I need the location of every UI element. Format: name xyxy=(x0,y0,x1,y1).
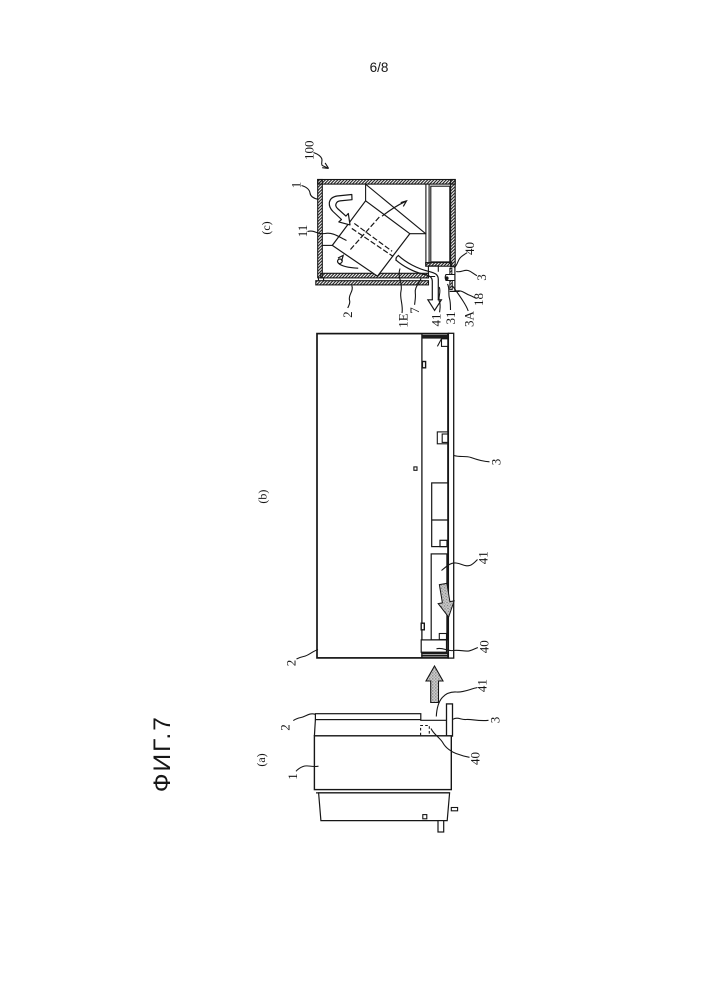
svg-text:31: 31 xyxy=(443,312,458,325)
svg-text:41: 41 xyxy=(429,314,444,327)
svg-text:41: 41 xyxy=(475,679,490,692)
svg-text:40: 40 xyxy=(476,640,491,653)
svg-text:40: 40 xyxy=(468,752,483,765)
svg-text:ФИГ.7: ФИГ.7 xyxy=(149,715,176,792)
svg-text:2: 2 xyxy=(340,311,355,318)
svg-text:(b): (b) xyxy=(256,490,270,504)
svg-text:3: 3 xyxy=(487,717,502,724)
svg-text:2: 2 xyxy=(284,660,299,667)
svg-text:1: 1 xyxy=(285,773,300,780)
svg-text:1: 1 xyxy=(289,182,304,189)
svg-text:40: 40 xyxy=(462,242,477,255)
svg-text:(c): (c) xyxy=(259,221,273,234)
svg-text:6/8: 6/8 xyxy=(370,60,389,75)
svg-text:18: 18 xyxy=(471,293,486,306)
svg-text:3A: 3A xyxy=(462,310,477,327)
svg-text:(a): (a) xyxy=(254,753,268,766)
svg-text:2: 2 xyxy=(278,724,293,731)
svg-text:1E: 1E xyxy=(396,313,411,328)
svg-text:7: 7 xyxy=(407,307,422,314)
svg-text:41: 41 xyxy=(475,551,490,564)
svg-text:3: 3 xyxy=(489,459,504,466)
svg-text:100: 100 xyxy=(302,141,317,161)
